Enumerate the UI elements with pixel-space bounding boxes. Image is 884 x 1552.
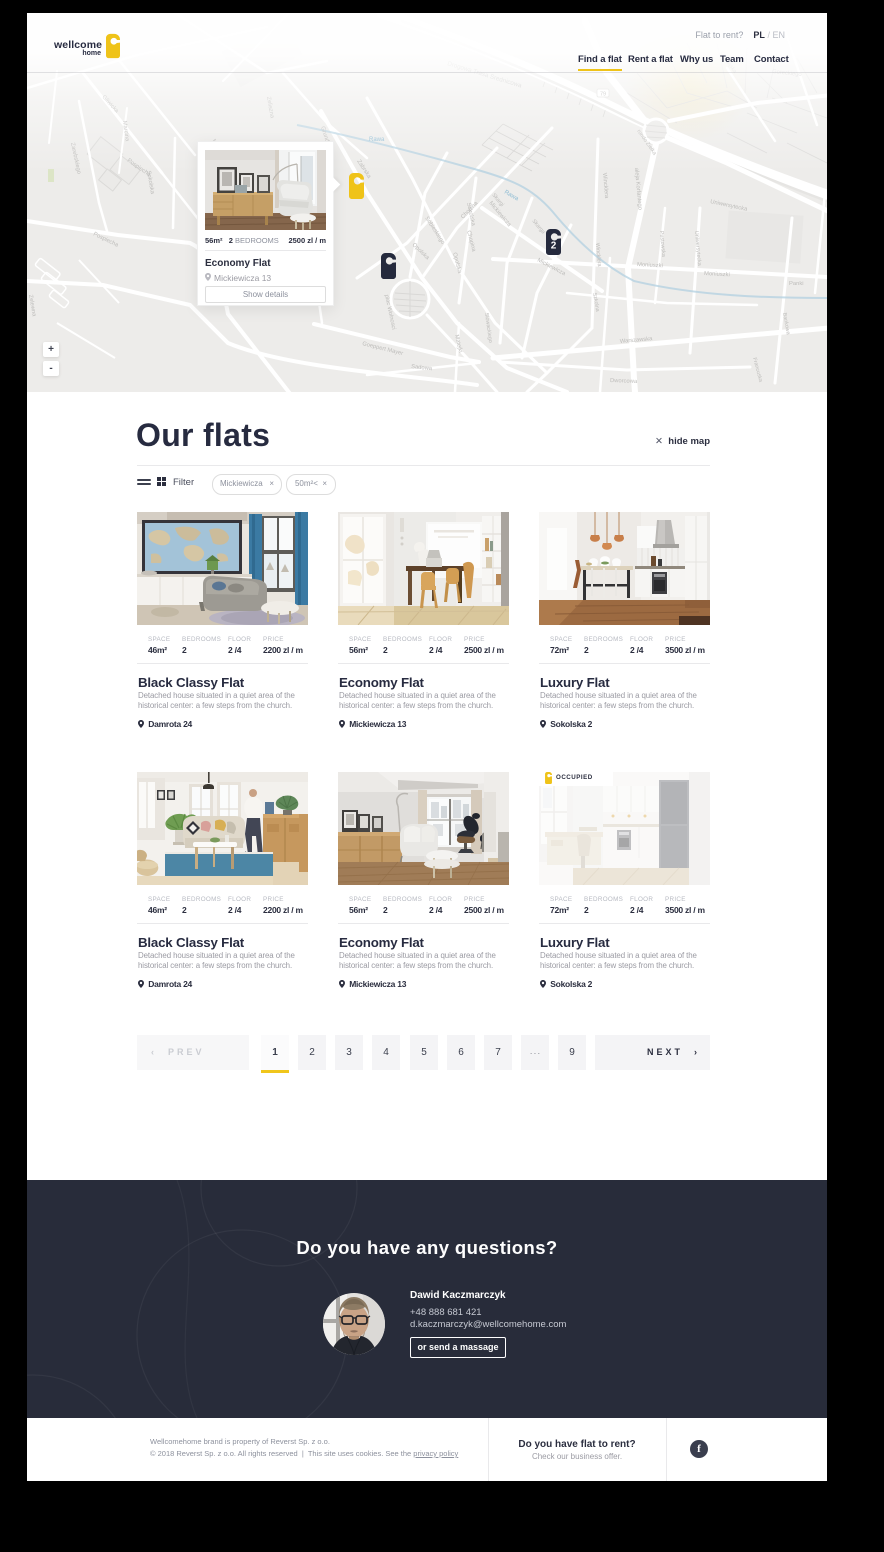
svg-text:Panki: Panki bbox=[789, 281, 804, 287]
svg-text:Dworcowa: Dworcowa bbox=[610, 378, 638, 385]
svg-text:2: 2 bbox=[551, 241, 557, 252]
